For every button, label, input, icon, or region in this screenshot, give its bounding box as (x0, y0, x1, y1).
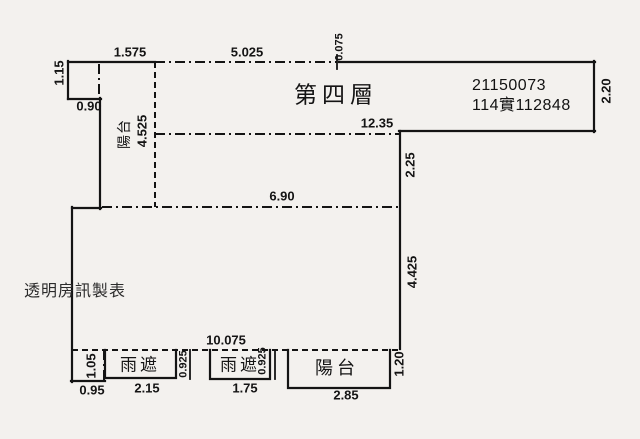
dim-canopy-left-width: 2.15 (134, 382, 159, 395)
dim-upper-width: 12.35 (361, 117, 394, 130)
dim-bottom-total: 10.075 (206, 334, 246, 347)
dim-bottom-balcony-width: 2.85 (333, 389, 358, 402)
dim-top-balcony-depth: 4.525 (136, 115, 149, 148)
floor-title: 第四層 (294, 84, 378, 107)
dim-bottom-notch-height: 1.05 (85, 353, 98, 378)
canopy-right-label: 雨遮 (220, 357, 260, 374)
registry-case-no: 114實112848 (472, 96, 571, 116)
registry-block: 21150073 114實112848 (472, 76, 571, 116)
dim-top-offset: 1.575 (114, 46, 147, 59)
dim-top-main: 5.025 (231, 46, 264, 59)
watermark-text: 透明房訊製表 (24, 277, 126, 301)
dim-notch-height: 1.15 (53, 60, 66, 85)
dim-bottom-balcony-depth: 1.20 (393, 351, 406, 376)
dim-top-step: 0.075 (335, 33, 346, 61)
registry-serial: 21150073 (472, 76, 571, 96)
dim-canopy-left-depth: 0.925 (179, 350, 190, 378)
dim-right-lower: 4.425 (406, 256, 419, 289)
dim-bottom-notch-width: 0.95 (79, 384, 104, 397)
dim-notch-width: 0.90 (76, 100, 101, 113)
dim-canopy-right-width: 1.75 (232, 382, 257, 395)
top-balcony-label: 陽台 (119, 119, 133, 149)
bottom-balcony-label: 陽台 (315, 359, 359, 377)
floorplan-page: 第四層 21150073 114實112848 透明房訊製表 陽台 雨遮 雨遮 … (0, 0, 640, 439)
dim-right-upper: 2.20 (600, 78, 613, 103)
dim-right-mid: 2.25 (404, 152, 417, 177)
dim-interior-width: 6.90 (269, 190, 294, 203)
canopy-left-label: 雨遮 (120, 357, 160, 374)
dim-canopy-right-depth: 0.925 (258, 347, 269, 375)
